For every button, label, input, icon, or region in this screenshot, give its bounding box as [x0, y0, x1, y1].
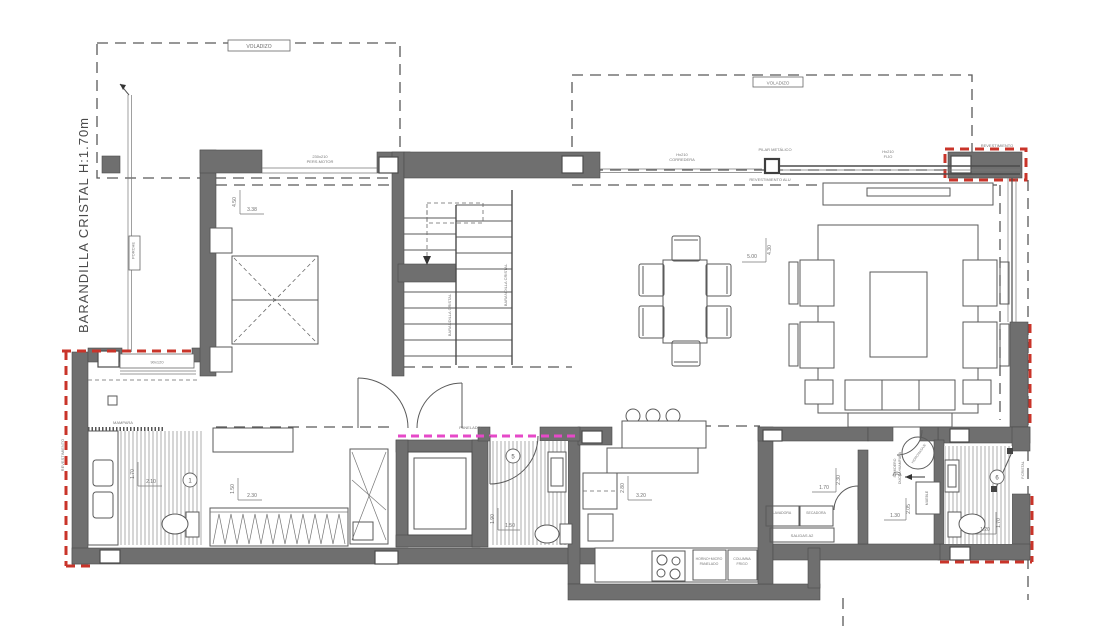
toilet: [535, 524, 572, 544]
nightstand: [210, 228, 232, 253]
barandilla-left-label: BARANDILLA CRISTAL H:1.70m: [76, 117, 91, 333]
mirror: [108, 396, 117, 405]
svg-text:4.30: 4.30: [767, 245, 773, 255]
porche-label: PORCHE: [131, 242, 136, 259]
railing-post: [102, 156, 120, 173]
svg-text:1.50: 1.50: [505, 523, 515, 529]
revestimiento-alu-label: REVESTIMIENTO ALU: [749, 177, 790, 182]
tv-unit: [823, 183, 993, 205]
living-room: [789, 183, 1009, 427]
svg-text:2.30: 2.30: [247, 493, 257, 499]
svg-text:1.70: 1.70: [996, 518, 1002, 528]
dim-kitchen: 2.80 3.20: [620, 476, 652, 500]
dim-wardrobe: 1.50 2.30: [230, 478, 262, 500]
sofa: [805, 380, 991, 427]
svg-text:1.70: 1.70: [130, 469, 136, 479]
revestimiento-left-label: REVESTIMIENTO: [60, 439, 65, 472]
pilar-metalico-label: PILAR METÁLICO: [758, 147, 791, 152]
dryer: [800, 506, 833, 526]
svg-text:1.50: 1.50: [230, 484, 236, 494]
room-number-6: 6: [990, 470, 1004, 484]
mampara-label: MAMPARA: [113, 420, 133, 425]
svg-text:1.20: 1.20: [980, 527, 990, 533]
stair-direction-arrow-icon: [423, 256, 431, 265]
dining-table: [663, 260, 707, 343]
master-bedroom: 4.50 3.38: [210, 190, 318, 452]
dresser: [213, 428, 293, 452]
stair-rail-inner-label: BARANDILLA CRISTAL: [447, 293, 452, 336]
svg-text:3.38: 3.38: [247, 207, 257, 213]
svg-text:5.00: 5.00: [747, 254, 757, 260]
dim-bedroom: 4.50 3.38: [232, 190, 264, 214]
railing-arrow-icon: [120, 84, 126, 90]
sumidero-label-2: DUCHA+MAMPARA: [898, 451, 902, 484]
voladizo-right-outline: VOLADIZO: [572, 75, 972, 170]
fijo-label-2: FIJO: [884, 154, 893, 159]
voladizo-left-label: VOLADIZO: [246, 44, 271, 50]
corredera-label-2: CORREDERA: [669, 157, 695, 162]
dim-laundry: 2.30 1.70: [812, 468, 842, 492]
pilar-metalico-square: [765, 159, 779, 173]
vanity-counter: [88, 431, 118, 545]
laundry-door-arc: [834, 486, 858, 510]
stair-rail-outer-label: BARANDILLA CRISTAL: [503, 263, 508, 306]
entry-doors: [358, 378, 462, 428]
washbasin: [93, 460, 113, 486]
master-bathroom: 90x120 MAMPARA 1.70 2.10 1: [88, 354, 202, 545]
svg-text:1.70: 1.70: [819, 485, 829, 491]
staircase: BARANDILLA CRISTAL BARANDILLA CRISTAL: [398, 190, 512, 365]
fridge-label-2: FRIGO: [736, 562, 747, 566]
window-master-label: 90x120: [150, 360, 164, 365]
svg-text:1.30: 1.30: [890, 513, 900, 519]
slope-arrow-icon: [905, 474, 912, 480]
elevator: [408, 452, 472, 535]
island-counter: [622, 421, 706, 448]
svg-text:3.20: 3.20: [636, 493, 646, 499]
dining-area: 5.00 4.30: [639, 236, 773, 366]
oven-label-1: HORNO+MICRO: [696, 557, 723, 561]
oven-label-2: PANELADO: [700, 562, 719, 566]
svg-text:2.05: 2.05: [906, 504, 912, 514]
room-number-5: 5: [506, 449, 520, 463]
shower-bathroom: HIDROMASAJE SUMIDERO DUCHA+MAMPARA MUEBL…: [884, 430, 940, 520]
washbasin: [93, 492, 113, 518]
fridge-label-1: COLUMNA: [733, 557, 751, 561]
shower-circle-label: HIDROMASAJE: [911, 443, 927, 464]
svg-text:2.80: 2.80: [620, 483, 626, 493]
svg-text:4.50: 4.50: [232, 197, 238, 207]
salidas-label: SALIDAS A2: [791, 533, 814, 538]
mueble-label: MUEBLE: [925, 490, 929, 505]
pers-motor-label-2: PERS.MOTOR: [307, 159, 334, 164]
svg-text:2.10: 2.10: [146, 479, 156, 485]
dim-bath3: 2.05 1.30: [884, 498, 912, 520]
wardrobe-tall: [350, 449, 388, 544]
room-number-1: 1: [183, 473, 197, 487]
porche-label-group: PORCHE: [129, 236, 140, 270]
pantry-cabinet: [588, 514, 613, 541]
nightstand: [210, 347, 232, 372]
bathroom-5: 1.90 1.50 5: [490, 436, 572, 545]
stair-void-dash: [427, 203, 483, 223]
dryer-label: SECADORA: [806, 511, 826, 515]
revestimiento-right-label: REVESTIMIENTO: [981, 143, 1014, 148]
floorplan-drawing: VOLADIZO VOLADIZO BARANDILLA CRISTAL H:1…: [0, 0, 1110, 626]
stair-landing: [398, 264, 456, 282]
wardrobe-long: 1.50 2.30: [210, 478, 348, 546]
glass-railing-left: BARANDILLA CRISTAL H:1.70m: [76, 84, 132, 352]
svg-text:2.30: 2.30: [836, 475, 842, 485]
puerta-bath6-label: P.CRISTAL: [1021, 461, 1025, 478]
svg-text:1.90: 1.90: [490, 514, 496, 524]
coffee-table: [870, 272, 927, 357]
island-lower: [607, 448, 698, 473]
washer-label: LAVADORA: [773, 511, 792, 515]
dim-living: 5.00 4.30: [742, 238, 773, 262]
laundry-room: LAVADORA SECADORA SALIDAS A2 2.30 1.70: [766, 468, 858, 542]
voladizo-right-label: VOLADIZO: [767, 81, 790, 86]
floorplan-page: VOLADIZO VOLADIZO BARANDILLA CRISTAL H:1…: [0, 0, 1110, 626]
